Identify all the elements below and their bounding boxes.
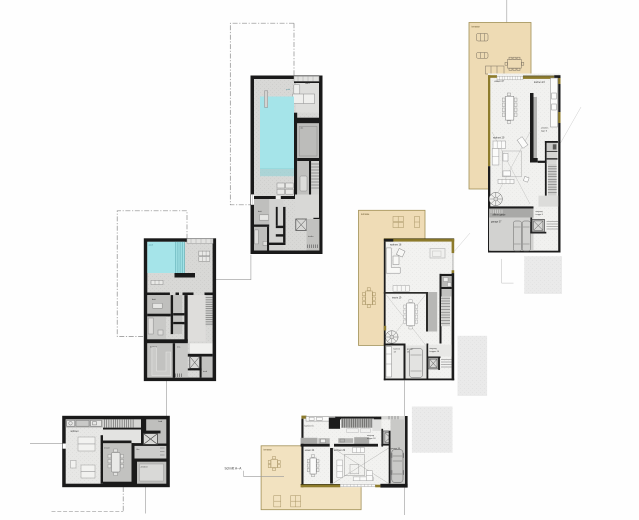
svg-text:essen: essen — [104, 448, 111, 450]
svg-text:kochen 23: kochen 23 — [534, 82, 545, 84]
svg-text:kochen: kochen — [394, 349, 400, 351]
svg-text:essen 19: essen 19 — [392, 298, 402, 300]
svg-text:eingang: eingang — [367, 435, 374, 437]
svg-text:treppe 18: treppe 18 — [367, 437, 376, 440]
svg-text:wohnen: wohnen — [71, 431, 80, 433]
svg-text:eingang: eingang — [430, 348, 437, 350]
svg-text:arbeiten: arbeiten — [541, 127, 548, 130]
svg-text:Schnitt A--A: Schnitt A--A — [225, 467, 243, 471]
svg-text:kochen 15: kochen 15 — [304, 426, 314, 428]
svg-text:terrasse: terrasse — [472, 26, 481, 29]
svg-text:eingang: eingang — [536, 211, 543, 213]
svg-text:offene garde: offene garde — [493, 214, 507, 217]
svg-text:pool: pool — [149, 245, 154, 247]
svg-text:bett: bett — [152, 298, 156, 301]
svg-text:lager 6: lager 6 — [541, 130, 548, 132]
svg-text:treppe 6: treppe 6 — [536, 213, 544, 216]
svg-text:treppen 16: treppen 16 — [430, 350, 440, 353]
svg-text:büro: büro — [305, 82, 310, 85]
svg-text:essen 47: essen 47 — [495, 81, 505, 83]
svg-text:pool: pool — [286, 89, 291, 91]
svg-text:terrasse: terrasse — [361, 213, 370, 216]
svg-text:flur: flur — [137, 448, 140, 451]
svg-text:zimmer: zimmer — [141, 466, 148, 469]
svg-text:techn: techn — [308, 235, 314, 238]
svg-text:garage 37: garage 37 — [491, 221, 502, 224]
svg-text:wohnen 29: wohnen 29 — [493, 138, 505, 140]
svg-text:bett: bett — [258, 210, 262, 213]
svg-text:terrasse: terrasse — [264, 449, 273, 452]
svg-text:wohnen 18: wohnen 18 — [390, 245, 402, 247]
svg-text:wohnen 29: wohnen 29 — [334, 450, 346, 452]
svg-text:essen 24: essen 24 — [305, 450, 315, 452]
